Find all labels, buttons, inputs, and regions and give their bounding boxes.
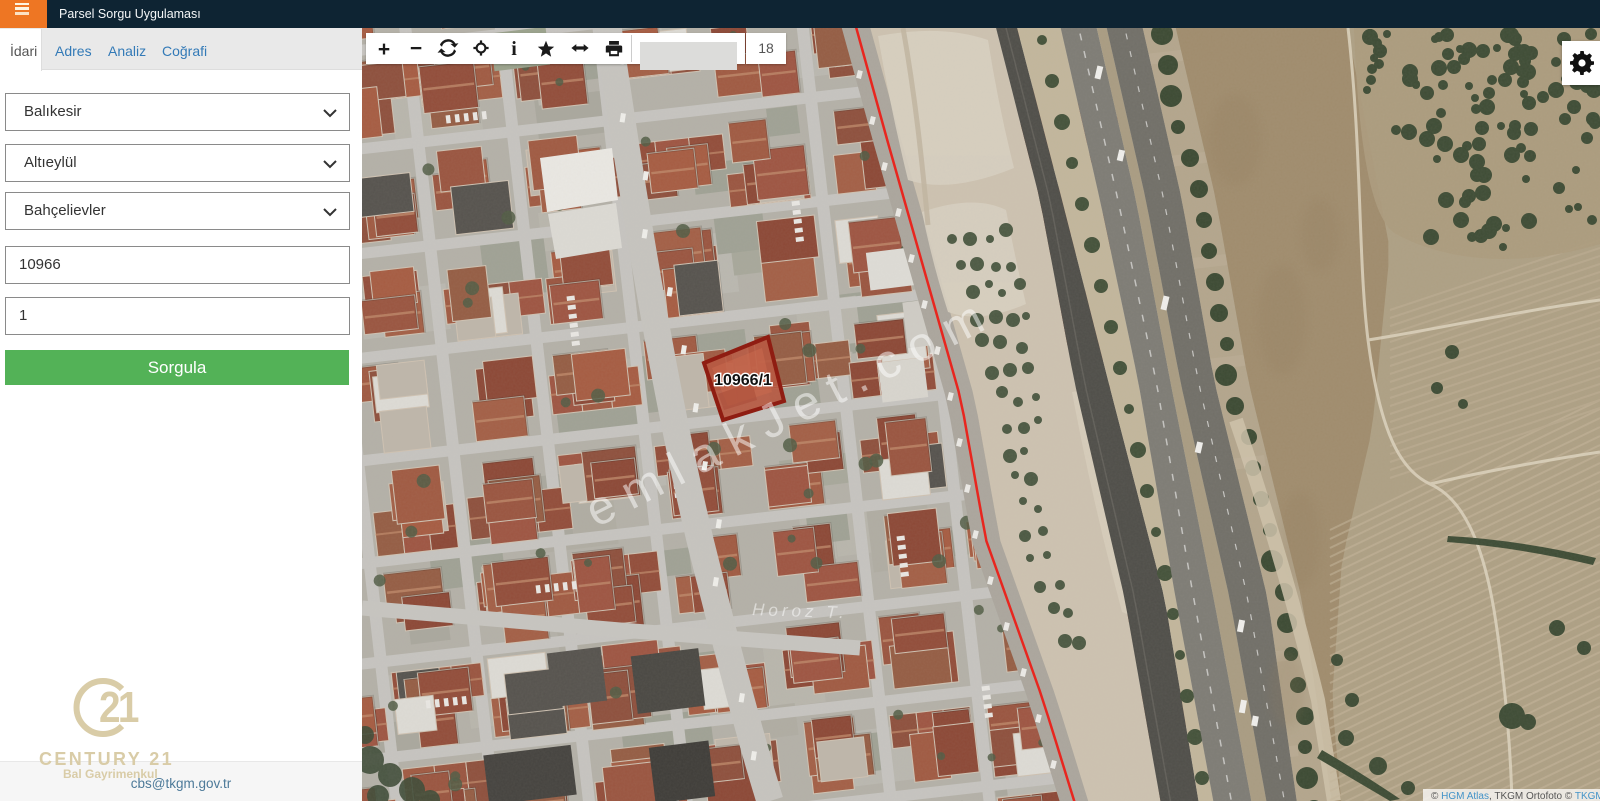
svg-text:© HGM Atlas, TKGM Ortofoto © T: © HGM Atlas, TKGM Ortofoto © TKGM bbox=[1431, 791, 1600, 801]
svg-text:CENTURY 21: CENTURY 21 bbox=[39, 749, 174, 769]
svg-text:10966/1: 10966/1 bbox=[714, 372, 772, 389]
svg-text:21: 21 bbox=[99, 682, 138, 732]
svg-text:−: − bbox=[410, 37, 422, 60]
svg-text:Horoz T.: Horoz T. bbox=[752, 600, 848, 622]
svg-text:i: i bbox=[511, 38, 517, 60]
svg-text:+: + bbox=[378, 38, 390, 61]
